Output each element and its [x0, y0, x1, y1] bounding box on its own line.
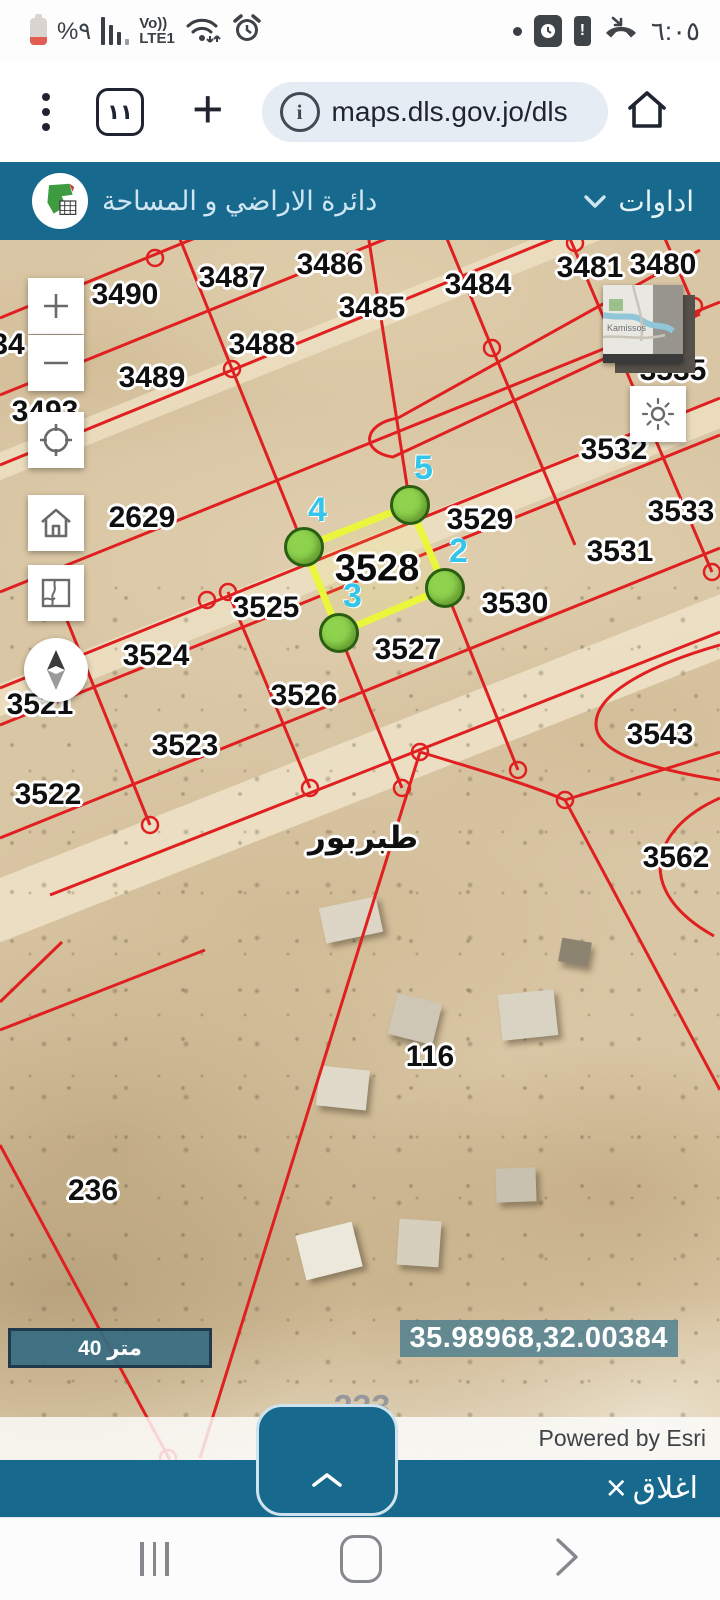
wifi-icon	[185, 14, 221, 49]
parcel-label: 3485	[339, 291, 406, 325]
parcel-label: 3488	[229, 328, 296, 362]
parcel-label: 3481	[557, 251, 624, 285]
sun-basemap-button[interactable]	[630, 386, 686, 442]
close-button[interactable]: × اغلاق	[606, 1460, 698, 1517]
nav-back-icon[interactable]	[554, 1536, 580, 1583]
home-icon[interactable]	[624, 88, 670, 137]
parcel-label: طبربور	[308, 820, 418, 856]
parcel-label: 2629	[109, 501, 176, 535]
basemap-button[interactable]	[28, 565, 84, 621]
parcel-label: 3484	[445, 268, 512, 302]
coordinates-readout: 35.98968,32.00384	[400, 1320, 678, 1357]
battery-percent: %٩	[57, 17, 91, 46]
overview-place-label: Kamissos	[607, 323, 646, 333]
vertex-dot-icon[interactable]	[284, 527, 324, 567]
parcel-label: 3525	[233, 591, 300, 625]
android-nav-bar	[0, 1517, 720, 1600]
parcel-label: 3543	[627, 718, 694, 752]
parcel-label: 3527	[375, 633, 442, 667]
url-bar[interactable]: i maps.dls.gov.jo/dls	[262, 82, 608, 142]
vertex-marker[interactable]: 2	[425, 568, 465, 608]
vertex-number: 2	[449, 532, 468, 571]
parcel-label: 3531	[587, 535, 654, 569]
clock-time: ٦:٠٥	[651, 16, 700, 47]
tab-switcher-icon[interactable]: ١١	[96, 88, 144, 136]
parcel-label: 3526	[271, 679, 338, 713]
missed-call-icon	[603, 15, 639, 48]
page-info-icon[interactable]: i	[280, 92, 320, 132]
vertex-number: 4	[308, 491, 327, 530]
screen-capture-icon	[534, 15, 562, 47]
compass-icon[interactable]	[24, 638, 88, 702]
app-title: دائرة الاراضي و المساحة	[102, 186, 377, 217]
phone-screen: %٩ Vo))LTE1	[0, 0, 720, 1600]
network-type-label: Vo))LTE1	[139, 16, 175, 46]
vertex-marker[interactable]: 3	[319, 613, 359, 653]
nav-home-icon[interactable]	[340, 1535, 382, 1583]
zoom-in-button[interactable]	[28, 278, 84, 334]
new-tab-icon[interactable]: +	[192, 82, 224, 136]
chevron-up-icon	[310, 1471, 344, 1489]
vertex-number: 3	[343, 577, 362, 616]
vertex-number: 5	[414, 449, 433, 488]
battery-low-icon	[30, 18, 47, 45]
url-text[interactable]: maps.dls.gov.jo/dls	[332, 96, 568, 128]
status-bar: %٩ Vo))LTE1	[0, 0, 720, 62]
vertex-dot-icon[interactable]	[425, 568, 465, 608]
zoom-out-button[interactable]	[28, 335, 84, 391]
app-header: دائرة الاراضي و المساحة اداوات	[0, 162, 720, 240]
parcel-label: 3524	[123, 639, 190, 673]
parcel-label: 3489	[119, 361, 186, 395]
esri-attribution: Powered by Esri	[539, 1425, 706, 1452]
vertex-dot-icon[interactable]	[390, 485, 430, 525]
parcel-label: 3533	[648, 495, 715, 529]
vertex-marker[interactable]: 4	[284, 527, 324, 567]
browser-toolbar: ١١ + i maps.dls.gov.jo/dls	[0, 62, 720, 162]
parcel-label: 34	[0, 328, 25, 362]
signal-bars-icon	[101, 17, 129, 45]
parcel-label: 3523	[152, 729, 219, 763]
parcel-label: 3530	[482, 587, 549, 621]
dls-logo	[32, 173, 88, 229]
overview-map[interactable]: Kamissos	[603, 285, 683, 363]
close-label: اغلاق	[633, 1471, 698, 1506]
locate-button[interactable]	[28, 412, 84, 468]
tools-menu[interactable]: اداوات	[584, 185, 694, 218]
battery-alert-icon: !	[574, 16, 591, 46]
alarm-icon	[231, 13, 263, 50]
parcel-label: 3522	[15, 778, 82, 812]
vertex-marker[interactable]: 5	[390, 485, 430, 525]
home-extent-button[interactable]	[28, 495, 84, 551]
expand-sheet-button[interactable]	[256, 1404, 398, 1516]
close-x-icon: ×	[606, 1470, 627, 1506]
kebab-menu-icon[interactable]	[42, 93, 50, 131]
parcel-label: 3486	[297, 248, 364, 282]
recents-icon[interactable]	[140, 1542, 169, 1576]
parcel-label: 236	[68, 1174, 118, 1208]
scale-bar-label: 40 متر	[78, 1336, 142, 1361]
scale-bar: 40 متر	[8, 1328, 212, 1368]
notification-dot-icon	[513, 27, 522, 36]
chevron-down-icon	[584, 195, 606, 208]
parcel-label: 3562	[643, 841, 710, 875]
tools-label: اداوات	[618, 185, 694, 218]
overview-scale-strip	[603, 354, 683, 363]
vertex-dot-icon[interactable]	[319, 613, 359, 653]
parcel-label: 3480	[630, 248, 697, 282]
parcel-label: 116	[406, 1040, 454, 1074]
map-canvas[interactable]: 3490348734863485348434813480348834893434…	[0, 240, 720, 1460]
parcel-label: 3487	[199, 261, 266, 295]
parcel-label: 3490	[92, 278, 159, 312]
